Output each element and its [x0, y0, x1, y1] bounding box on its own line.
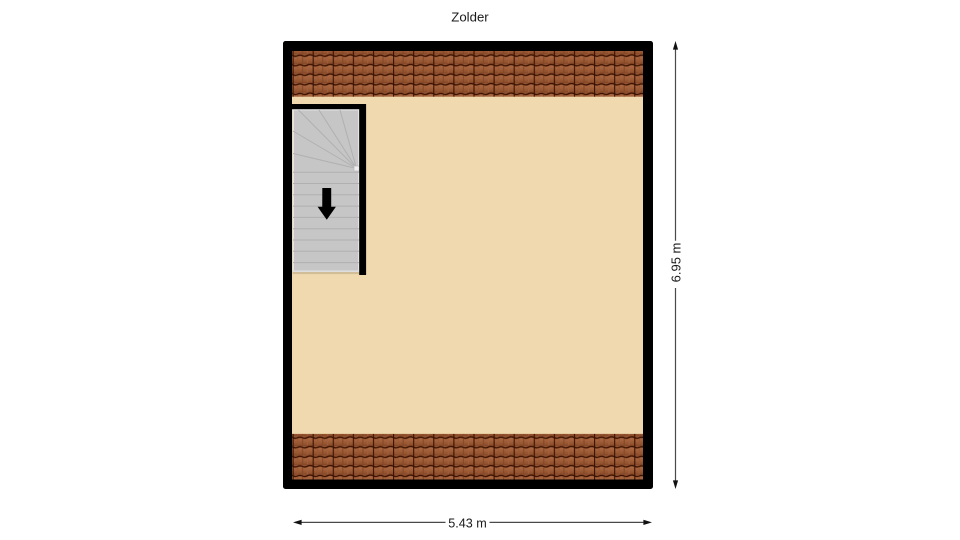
svg-text:6.95 m: 6.95 m	[668, 243, 683, 283]
svg-text:Zolder: Zolder	[451, 10, 489, 25]
svg-text:5.43 m: 5.43 m	[448, 516, 487, 530]
